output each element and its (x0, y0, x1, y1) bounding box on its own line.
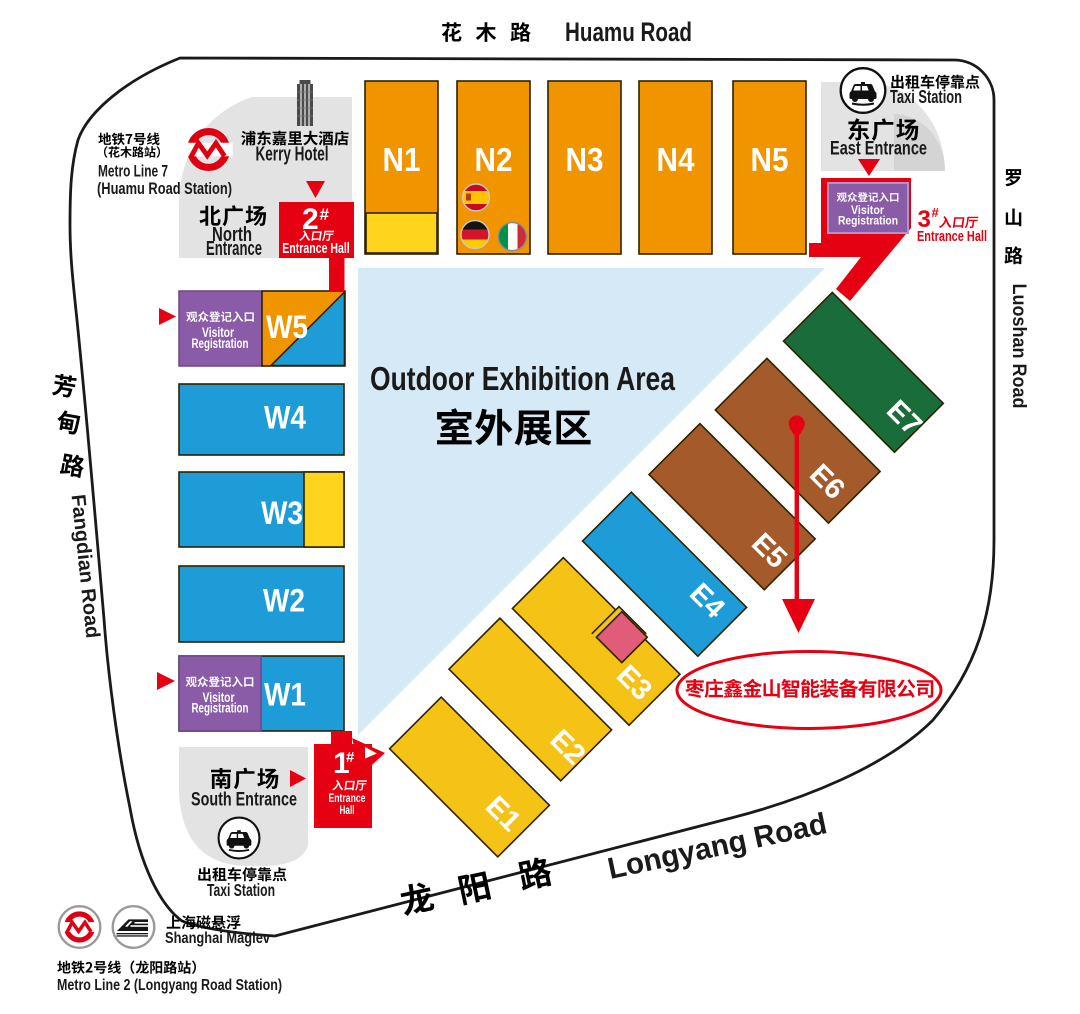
svg-text:Metro Line 2 (Longyang Road St: Metro Line 2 (Longyang Road Station) (57, 977, 282, 994)
svg-text:Taxi Station: Taxi Station (890, 87, 962, 107)
svg-text:East Entrance: East Entrance (830, 139, 927, 160)
svg-text:N3: N3 (566, 141, 604, 178)
svg-text:#: # (346, 749, 355, 766)
svg-text:Registration: Registration (192, 701, 249, 716)
svg-text:Entrance: Entrance (206, 238, 262, 260)
svg-text:#: # (932, 205, 940, 220)
svg-text:Luoshan Road: Luoshan Road (1008, 284, 1029, 409)
svg-text:(Huamu Road Station): (Huamu Road Station) (97, 179, 232, 198)
svg-text:Taxi Station: Taxi Station (207, 880, 275, 900)
svg-text:Registration: Registration (838, 214, 898, 228)
svg-text:N4: N4 (657, 141, 696, 178)
svg-text:2: 2 (302, 203, 319, 236)
svg-text:#: # (320, 205, 330, 224)
svg-text:N5: N5 (751, 141, 789, 178)
svg-text:W2: W2 (263, 583, 305, 619)
svg-text:South Entrance: South Entrance (191, 790, 297, 811)
svg-text:Shanghai Maglev: Shanghai Maglev (165, 930, 270, 947)
svg-text:W3: W3 (261, 495, 303, 531)
svg-text:N2: N2 (475, 141, 513, 178)
svg-text:Entrance Hall: Entrance Hall (917, 229, 987, 245)
svg-text:N1: N1 (383, 141, 421, 178)
svg-text:Entrance: Entrance (329, 793, 366, 805)
svg-text:Registration: Registration (192, 336, 249, 351)
svg-text:Entrance Hall: Entrance Hall (282, 240, 350, 257)
svg-text:Huamu Road: Huamu Road (565, 17, 692, 47)
svg-text:Outdoor Exhibition Area: Outdoor Exhibition Area (370, 360, 676, 397)
svg-text:Kerry Hotel: Kerry Hotel (256, 144, 329, 166)
svg-text:Metro Line 7: Metro Line 7 (98, 162, 168, 181)
svg-text:W5: W5 (266, 309, 308, 345)
svg-text:W1: W1 (264, 677, 306, 713)
svg-text:W4: W4 (264, 400, 306, 436)
svg-text:Hall: Hall (340, 805, 355, 817)
